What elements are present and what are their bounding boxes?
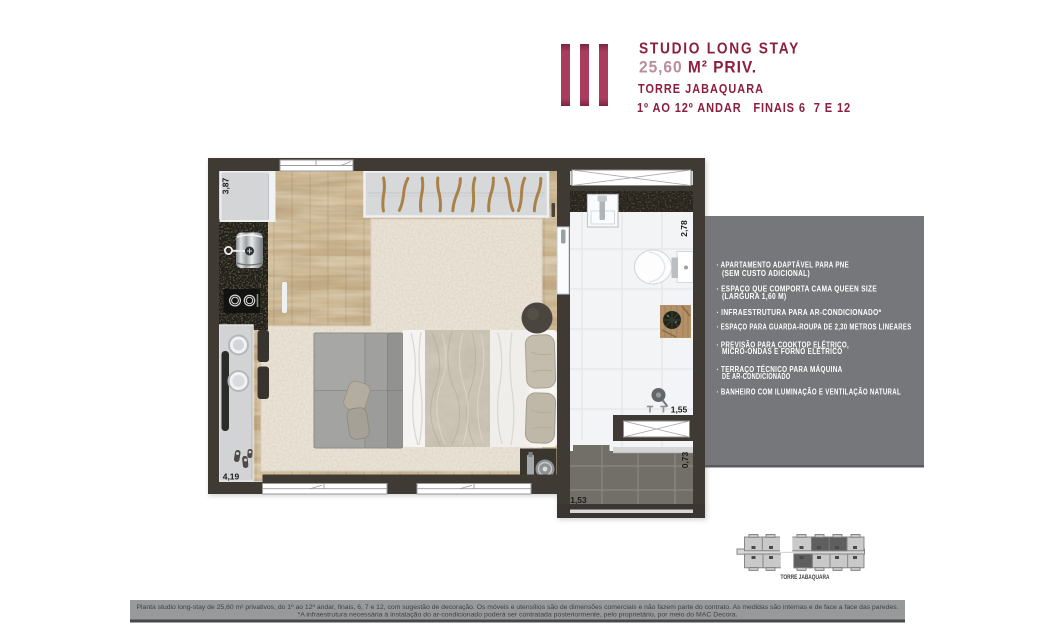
svg-text:Planta studio long-stay de 25,: Planta studio long-stay de 25,60 m² priv… — [137, 604, 899, 611]
svg-text:1º AO 12º ANDAR FINAIS 6 7: 1º AO 12º ANDAR FINAIS 6 7 E 12 — [637, 101, 851, 115]
svg-text:· ESPAÇO PARA GUARDA-ROUPA DE: · ESPAÇO PARA GUARDA-ROUPA DE 2,30 METRO… — [717, 322, 912, 331]
svg-text:25,60 M² PRIV.: 25,60 M² PRIV. — [639, 59, 757, 77]
svg-text:(SEM CUSTO ADICIONAL): (SEM CUSTO ADICIONAL) — [722, 269, 810, 278]
svg-text:· BANHEIRO COM ILUMINAÇÃO E VE: · BANHEIRO COM ILUMINAÇÃO E VENTILAÇÃO N… — [717, 388, 902, 397]
svg-text:· APARTAMENTO ADAPTÁVEL PARA P: · APARTAMENTO ADAPTÁVEL PARA PNE — [717, 261, 850, 270]
svg-text:0,73: 0,73 — [680, 451, 690, 468]
svg-text:3,87: 3,87 — [221, 177, 231, 194]
svg-text:1,55: 1,55 — [671, 405, 688, 415]
svg-text:MICRO-ONDAS E FORNO ELÉTRICO: MICRO-ONDAS E FORNO ELÉTRICO — [722, 347, 843, 356]
svg-text:4,19: 4,19 — [223, 472, 240, 482]
svg-text:*A infraestrutura necessária à: *A infraestrutura necessária à instalaçã… — [298, 612, 738, 619]
svg-text:1,53: 1,53 — [570, 495, 587, 505]
svg-text:DE AR-CONDICIONADO: DE AR-CONDICIONADO — [722, 372, 791, 381]
svg-text:(LARGURA 1,60 M): (LARGURA 1,60 M) — [722, 292, 787, 301]
svg-text:STUDIO LONG STAY: STUDIO LONG STAY — [639, 41, 800, 58]
svg-text:· INFRAESTRUTURA PARA AR-CONDI: · INFRAESTRUTURA PARA AR-CONDICIONADO* — [717, 308, 882, 317]
svg-text:TORRE JABAQUARA: TORRE JABAQUARA — [781, 575, 831, 581]
svg-text:2,78: 2,78 — [679, 220, 689, 237]
svg-text:TORRE JABAQUARA: TORRE JABAQUARA — [638, 82, 764, 96]
